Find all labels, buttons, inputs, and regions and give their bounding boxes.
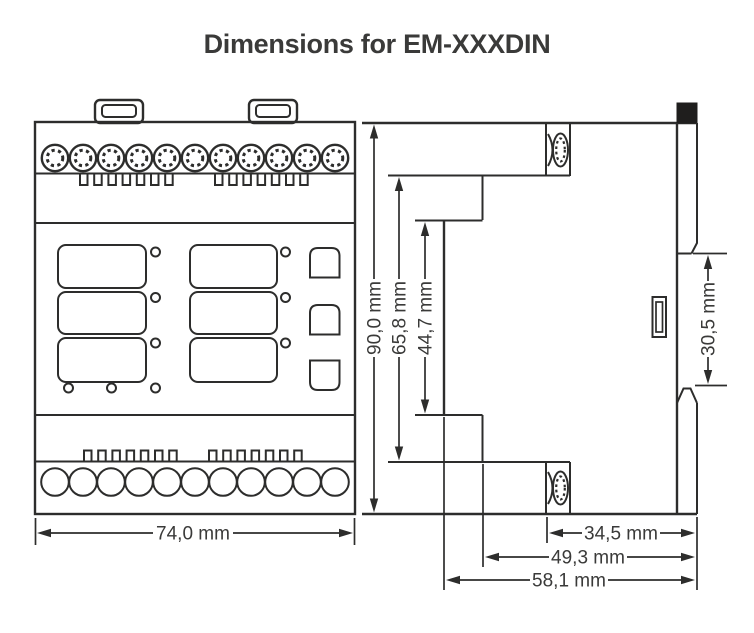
dimension-depth-middle: 49,3 mm [485,548,695,569]
terminal-screw [42,145,68,171]
display-window [190,338,277,382]
din-latch [677,389,697,515]
terminal-screw [182,145,208,171]
led [151,384,160,393]
top-terminal-row [42,145,348,171]
dim-height-middle-label: 65,8 mm [390,281,411,355]
dimension-height-inner: 44,7 mm [416,222,437,414]
page-title: Dimensions for EM-XXXDIN [204,29,551,59]
side-terminal-screw-top [548,134,568,167]
dim-depth-middle-label: 49,3 mm [551,548,625,569]
led [64,384,73,393]
terminal-screw [210,145,236,171]
dimension-height-middle: 65,8 mm [390,177,411,461]
terminal-hole [69,468,97,496]
terminal-screw [126,145,152,171]
button-top [310,248,340,278]
terminal-hole [293,468,321,496]
led [281,339,290,348]
button-bottom [310,361,340,391]
terminal-screw [266,145,292,171]
back-slot-outer [653,297,667,337]
led [151,248,160,257]
display-window [58,245,146,288]
technical-drawing: Dimensions for EM-XXXDIN [0,0,754,633]
dim-height-inner-label: 44,7 mm [416,281,437,355]
dimension-width: 74,0 mm [36,518,355,545]
front-buttons [310,248,340,390]
back-panel-edge [692,123,698,254]
terminal-hole [41,468,69,496]
din-clip-top [677,103,697,123]
display-window [58,338,146,382]
terminal-screw [294,145,320,171]
led-indicators [64,248,290,393]
dim-depth-outer-label: 58,1 mm [532,571,606,592]
terminal-hole [265,468,293,496]
mounting-tab-left-slot [102,105,136,117]
display-windows [58,245,277,382]
front-view [35,100,355,514]
led [151,339,160,348]
back-slot-inner [656,302,663,332]
display-window [190,245,277,288]
led [107,384,116,393]
terminal-hole [321,468,349,496]
mounting-tab-right-slot [256,105,290,117]
dim-width-label: 74,0 mm [156,524,230,545]
dimension-height-outer: 90,0 mm [365,125,386,513]
arrow-left [37,529,51,537]
terminal-screw [154,145,180,171]
led [281,248,290,257]
terminal-hole [237,468,265,496]
bottom-terminal-row [41,468,349,496]
dimension-depth-inner: 34,5 mm [549,524,695,545]
button-middle [310,305,340,335]
terminal-hole [125,468,153,496]
terminal-hole [181,468,209,496]
display-window [58,292,146,334]
dimension-din-clip: 30,5 mm [693,254,727,386]
terminal-hole [153,468,181,496]
terminal-hole [97,468,125,496]
terminal-screw [238,145,264,171]
top-vent-comb [80,175,308,186]
dimension-depth-outer: 58,1 mm [446,571,695,592]
side-view [362,103,697,514]
terminal-screw [70,145,96,171]
dim-din-clip-label: 30,5 mm [699,282,720,356]
arrow-right [339,529,353,537]
side-terminal-screw-bottom [548,472,568,505]
terminal-hole [209,468,237,496]
terminal-screw [98,145,124,171]
led [281,293,290,302]
bottom-vent-comb [84,451,302,462]
dim-depth-inner-label: 34,5 mm [584,524,658,545]
display-window [190,292,277,334]
terminal-screw [322,145,348,171]
led [151,293,160,302]
dim-height-outer-label: 90,0 mm [365,281,386,355]
dimension-drawing-page: Dimensions for EM-XXXDIN [0,0,754,633]
